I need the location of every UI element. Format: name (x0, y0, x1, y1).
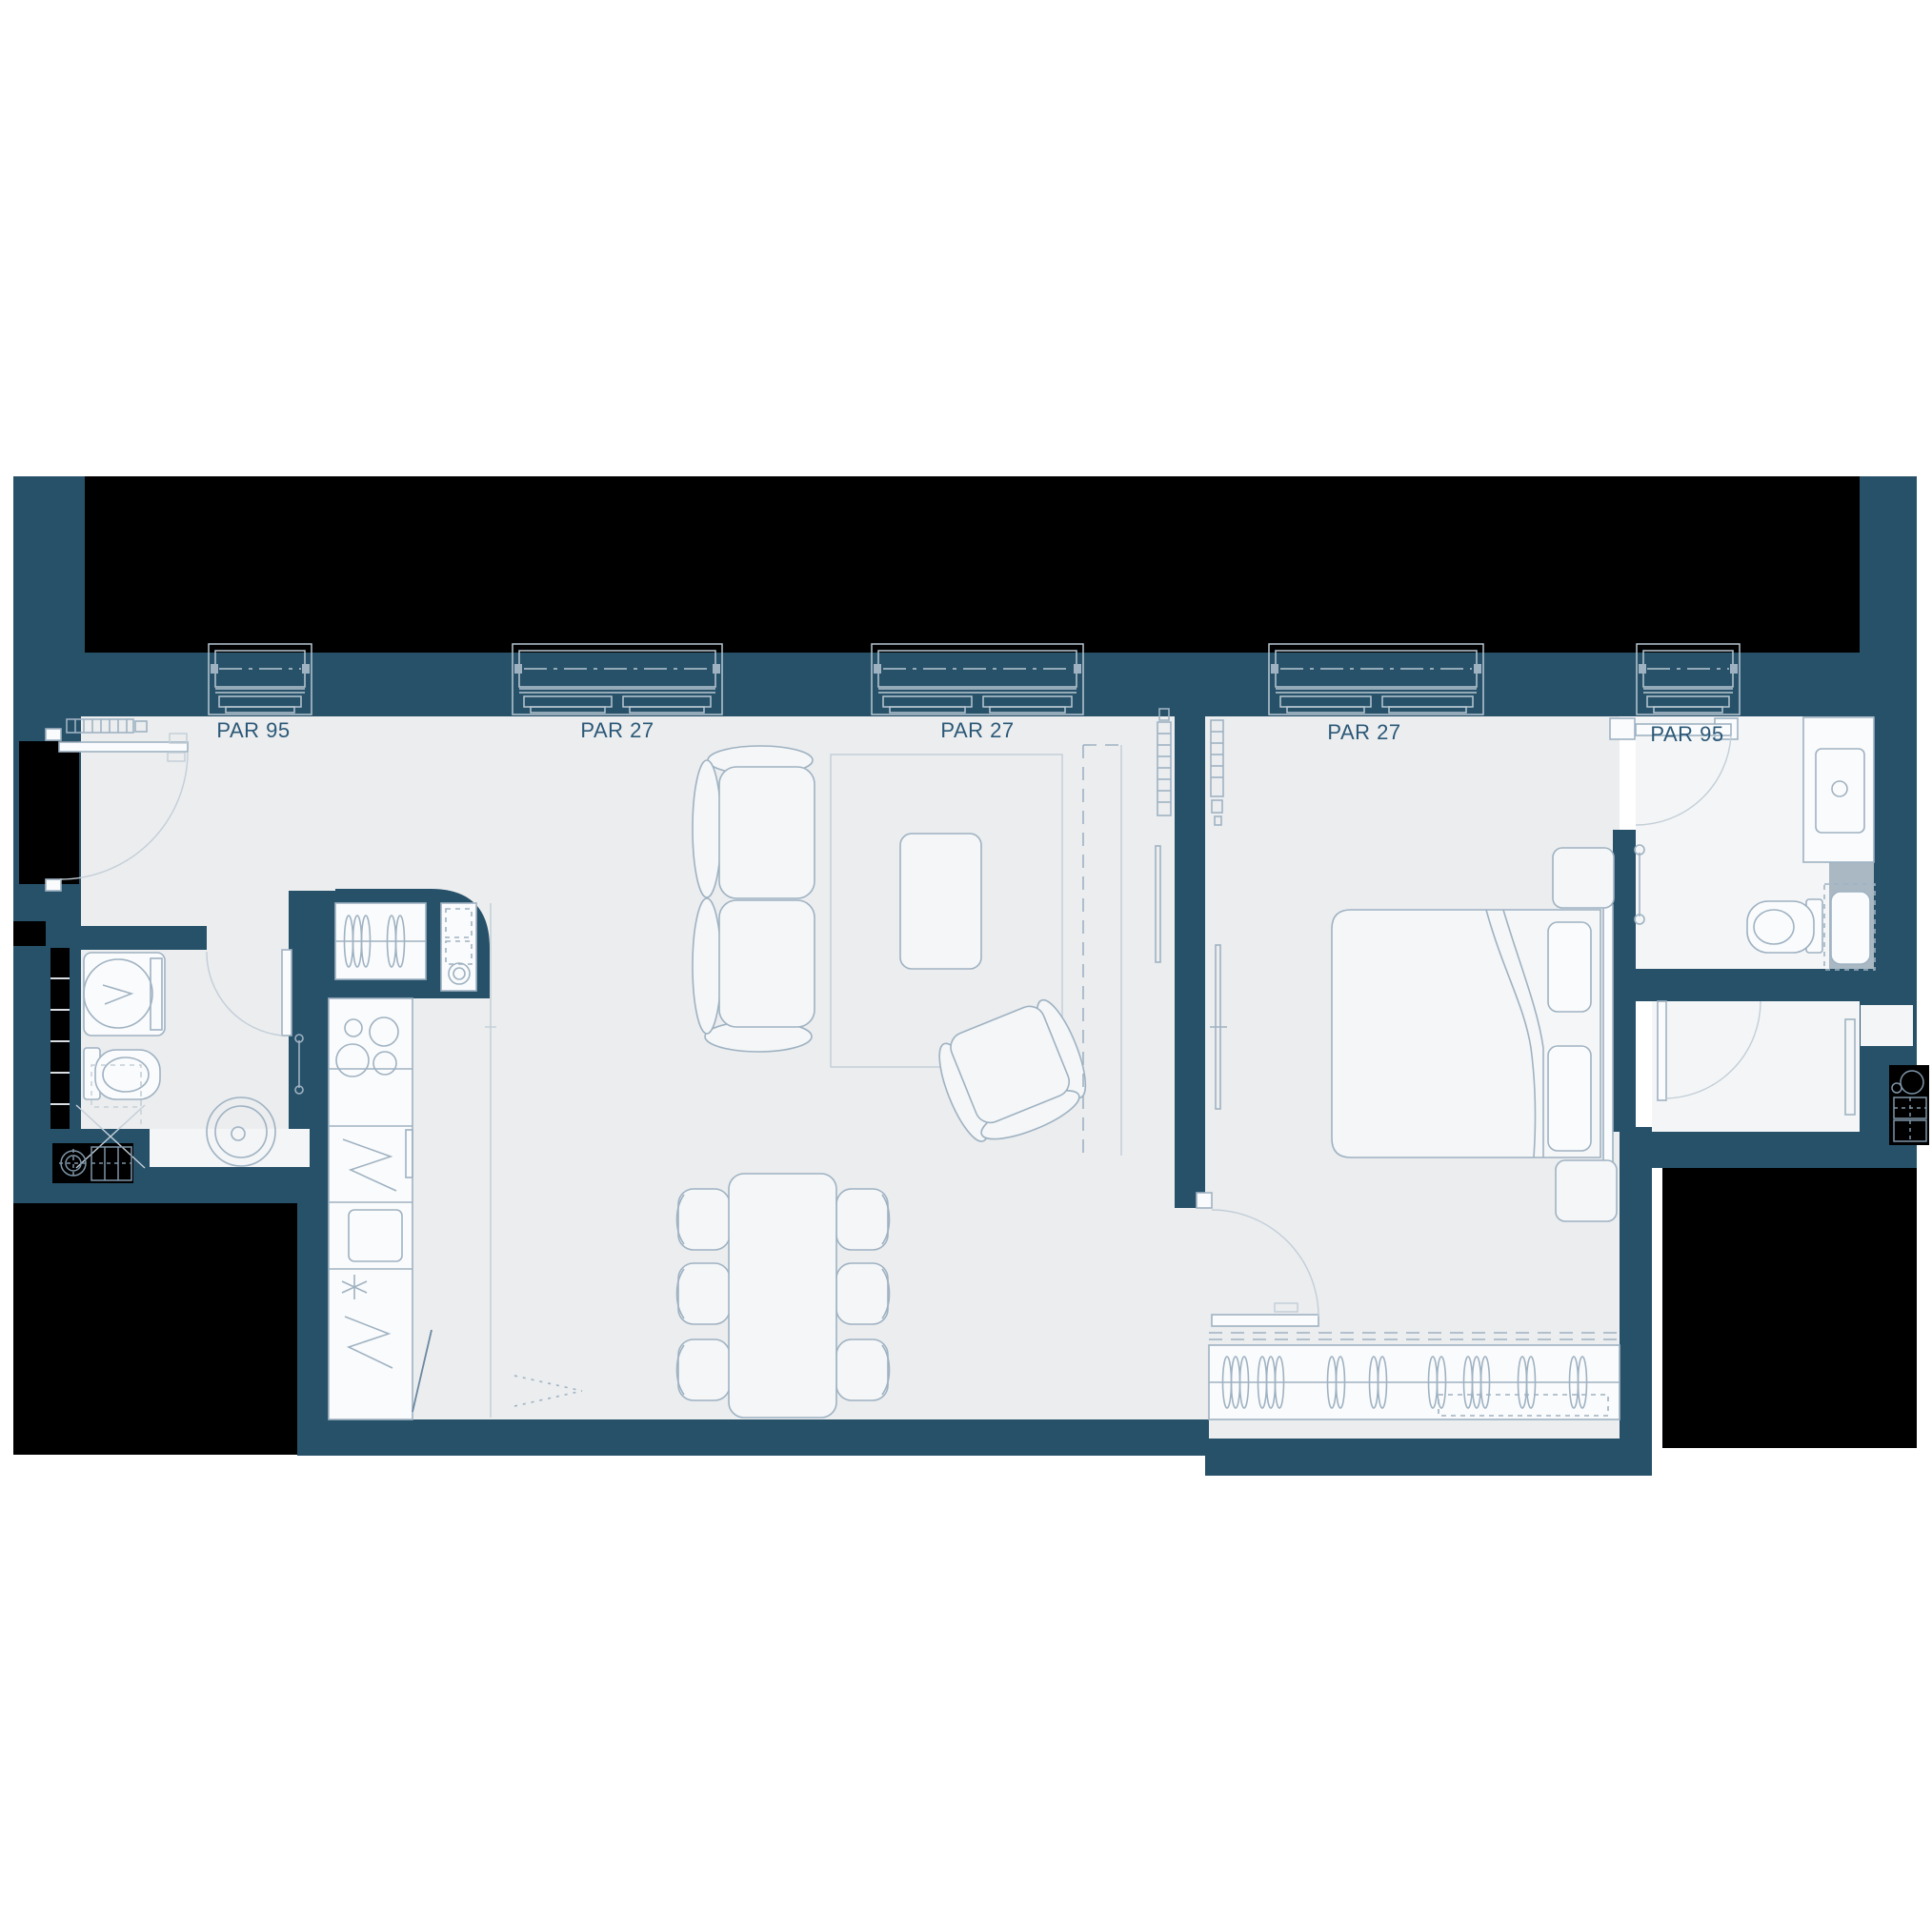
exterior-void-top (85, 476, 1860, 653)
dining-chair (836, 1263, 890, 1324)
wall-bedroom-right (1620, 1127, 1652, 1476)
window-label-4: PAR 27 (1327, 720, 1400, 744)
washing-machine (84, 953, 165, 1036)
kitchen-counter (329, 998, 413, 1419)
window-label-5: PAR 95 (1650, 722, 1723, 746)
wall-below-storeroom (1636, 1132, 1917, 1168)
wall-bathroom2-storeroom (1636, 969, 1917, 1001)
pillow (1548, 922, 1591, 1012)
wall-living-bottom (297, 1419, 1209, 1456)
window-label-1: PAR 95 (216, 718, 290, 742)
shower-tray (1824, 884, 1875, 970)
toilet (1747, 899, 1822, 953)
pillow (1548, 1046, 1591, 1151)
wall-notch-left (13, 921, 46, 946)
sink-counter (1803, 717, 1874, 862)
bed (1332, 905, 1613, 1162)
wardrobe (1209, 1333, 1620, 1419)
dining-table (729, 1174, 836, 1418)
dining-chair (677, 1263, 731, 1324)
window-label-3: PAR 27 (940, 718, 1014, 742)
duct-shaft (50, 948, 70, 1129)
coffee-table (900, 834, 981, 969)
floor-bathroom1-strip (150, 1129, 310, 1167)
headboard (1603, 905, 1613, 1162)
floor-plan-canvas: PAR 95 PAR 27 PAR 27 PAR 27 PAR 95 (0, 0, 1932, 1932)
wall-living-bedroom (1175, 653, 1205, 1208)
exterior-void-right (1662, 1168, 1917, 1448)
floor-storeroom (1652, 1001, 1860, 1132)
wall-niche (1861, 1005, 1913, 1046)
floor-plan: PAR 95 PAR 27 PAR 27 PAR 27 PAR 95 (0, 0, 1932, 1932)
dining-chair (836, 1339, 890, 1400)
dining-set (677, 1174, 890, 1418)
entry-opening (19, 741, 79, 884)
window-label-2: PAR 27 (580, 718, 654, 742)
exterior-void-bottom-left (13, 1203, 297, 1455)
wall-rim-bottom-left (297, 1203, 329, 1456)
dining-chair (677, 1339, 731, 1400)
wall-bedroom-bathroom (1613, 830, 1636, 1132)
dining-chair (677, 1189, 731, 1250)
dining-chair (836, 1189, 890, 1250)
wall-bedroom-bottom (1205, 1439, 1631, 1476)
nightstand (1553, 848, 1614, 908)
vent-block-right (1889, 1065, 1929, 1145)
nightstand (1556, 1160, 1617, 1221)
